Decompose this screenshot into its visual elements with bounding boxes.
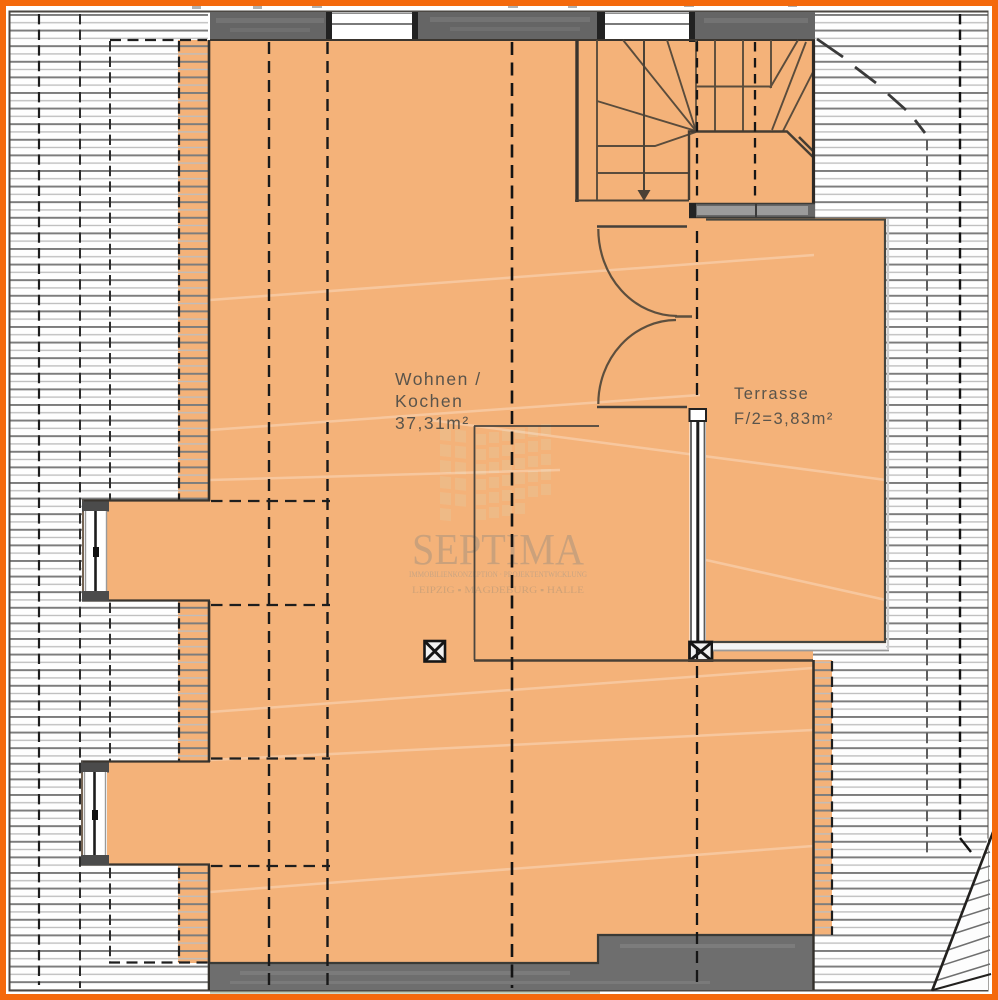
svg-text:37,31m²: 37,31m² — [395, 413, 470, 433]
svg-text:F/2=3,83m²: F/2=3,83m² — [734, 410, 834, 428]
svg-text:Terrasse: Terrasse — [734, 385, 809, 403]
svg-text:Kochen: Kochen — [395, 391, 463, 411]
svg-text:Wohnen /: Wohnen / — [395, 369, 482, 389]
svg-text:SEPTIMA: SEPTIMA — [412, 525, 584, 574]
svg-text:LEIPZIG ▪ MAGDEBURG ▪ HALLE: LEIPZIG ▪ MAGDEBURG ▪ HALLE — [412, 585, 585, 595]
svg-text:IMMOBILIENKONZEPTION · PROJEKT: IMMOBILIENKONZEPTION · PROJEKTENTWICKLUN… — [409, 570, 587, 579]
